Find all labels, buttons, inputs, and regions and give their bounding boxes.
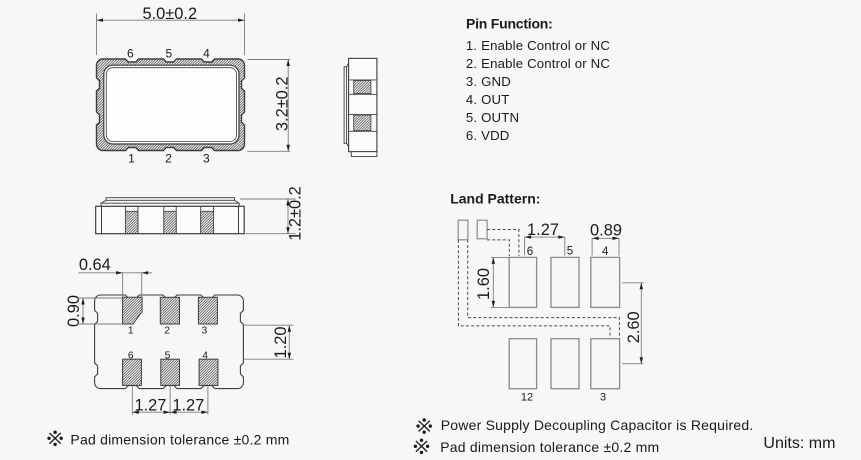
svg-text:1.60: 1.60 [475, 268, 493, 300]
svg-text:5: 5 [165, 350, 171, 361]
svg-text:1.27: 1.27 [134, 396, 166, 414]
svg-text:1.2±0.2: 1.2±0.2 [287, 186, 305, 241]
svg-text:Pad dimension tolerance ±0.2 m: Pad dimension tolerance ±0.2 mm [70, 431, 289, 447]
svg-text:1: 1 [128, 151, 135, 165]
svg-text:5.0±0.2: 5.0±0.2 [143, 5, 198, 23]
svg-text:0.64: 0.64 [79, 256, 111, 274]
svg-text:4. OUT: 4. OUT [466, 92, 510, 107]
svg-text:1: 1 [128, 326, 134, 337]
svg-text:1.27: 1.27 [527, 221, 559, 239]
svg-text:Power Supply Decoupling Capaci: Power Supply Decoupling Capacitor is Req… [441, 417, 754, 433]
svg-text:0.90: 0.90 [65, 295, 83, 327]
svg-text:Pad dimension tolerance ±0.2 m: Pad dimension tolerance ±0.2 mm [440, 439, 659, 455]
svg-text:1. Enable Control or NC: 1. Enable Control or NC [466, 38, 610, 53]
svg-text:Pin Function:: Pin Function: [466, 15, 553, 31]
svg-text:1.27: 1.27 [172, 396, 204, 414]
svg-text:3. GND: 3. GND [466, 74, 511, 89]
svg-text:3: 3 [600, 391, 606, 403]
svg-text:2: 2 [165, 151, 172, 165]
svg-text:2: 2 [164, 326, 170, 337]
svg-text:3: 3 [203, 151, 210, 165]
svg-text:12: 12 [521, 391, 533, 403]
svg-text:6: 6 [127, 46, 134, 60]
svg-text:6: 6 [527, 246, 533, 258]
svg-text:2.60: 2.60 [625, 311, 643, 343]
svg-text:5: 5 [165, 46, 172, 60]
svg-text:4: 4 [203, 46, 210, 60]
svg-text:Land Pattern:: Land Pattern: [450, 190, 540, 206]
svg-text:0.89: 0.89 [590, 221, 622, 239]
svg-text:3.2±0.2: 3.2±0.2 [274, 77, 292, 132]
svg-text:Units: mm: Units: mm [763, 435, 835, 452]
svg-text:3: 3 [202, 326, 208, 337]
svg-text:5: 5 [567, 245, 573, 257]
svg-text:5. OUTN: 5. OUTN [466, 110, 519, 125]
svg-text:6: 6 [128, 350, 134, 361]
svg-text:4: 4 [202, 350, 208, 361]
svg-text:2. Enable Control or NC: 2. Enable Control or NC [466, 56, 610, 71]
svg-text:6. VDD: 6. VDD [466, 128, 510, 143]
svg-text:4: 4 [602, 246, 609, 258]
svg-text:1.20: 1.20 [272, 327, 290, 359]
